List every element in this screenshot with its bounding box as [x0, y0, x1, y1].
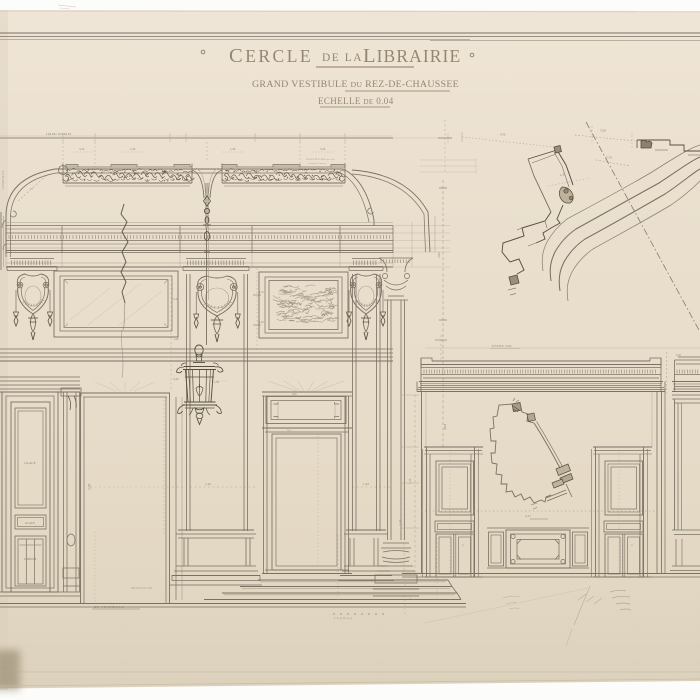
- svg-text:1,20: 1,20: [174, 338, 179, 341]
- svg-text:CERCLE: CERCLE: [229, 45, 313, 67]
- svg-text:1,30: 1,30: [214, 381, 219, 384]
- svg-text:ECHELLE DE 0.04: ECHELLE DE 0.04: [318, 96, 394, 106]
- svg-text:GRAND VESTIBULE DU REZ-DE-CHAU: GRAND VESTIBULE DU REZ-DE-CHAUSSEE: [252, 79, 459, 90]
- svg-text:0,30: 0,30: [174, 378, 179, 381]
- svg-text:0,45: 0,45: [676, 354, 681, 357]
- svg-text:du fond de l'ancien: du fond de l'ancien: [308, 162, 327, 165]
- svg-text:DU VESTIBULE: DU VESTIBULE: [94, 605, 124, 609]
- svg-text:LOI DU 19 ETA 03: LOI DU 19 ETA 03: [46, 132, 72, 136]
- svg-text:PEINTE DECOREE que celle: PEINTE DECOREE que celle: [306, 158, 335, 161]
- svg-text:ENTRE SOL: ENTRE SOL: [492, 344, 513, 348]
- svg-text:DE LA: DE LA: [322, 52, 363, 64]
- svg-text:J . b . g . D . p . g .: J . b . g . D . p . g .: [334, 617, 353, 620]
- svg-text:GLACE: GLACE: [25, 521, 35, 525]
- svg-text:0,45: 0,45: [174, 298, 179, 301]
- svg-text:1,20: 1,20: [259, 321, 264, 324]
- svg-text:NIVEAU DU SOL: NIVEAU DU SOL: [131, 587, 153, 590]
- svg-text:0,45: 0,45: [292, 393, 297, 396]
- svg-text:N: N: [631, 544, 633, 547]
- svg-text:GLACE: GLACE: [24, 461, 35, 465]
- svg-text:2,10: 2,10: [259, 291, 264, 294]
- svg-text:N: N: [462, 544, 464, 547]
- svg-text:CONSERVATION: CONSERVATION: [2, 171, 5, 190]
- svg-text:LIBRAIRIE: LIBRAIRIE: [363, 45, 461, 67]
- svg-text:TAMBOUR: TAMBOUR: [24, 558, 37, 561]
